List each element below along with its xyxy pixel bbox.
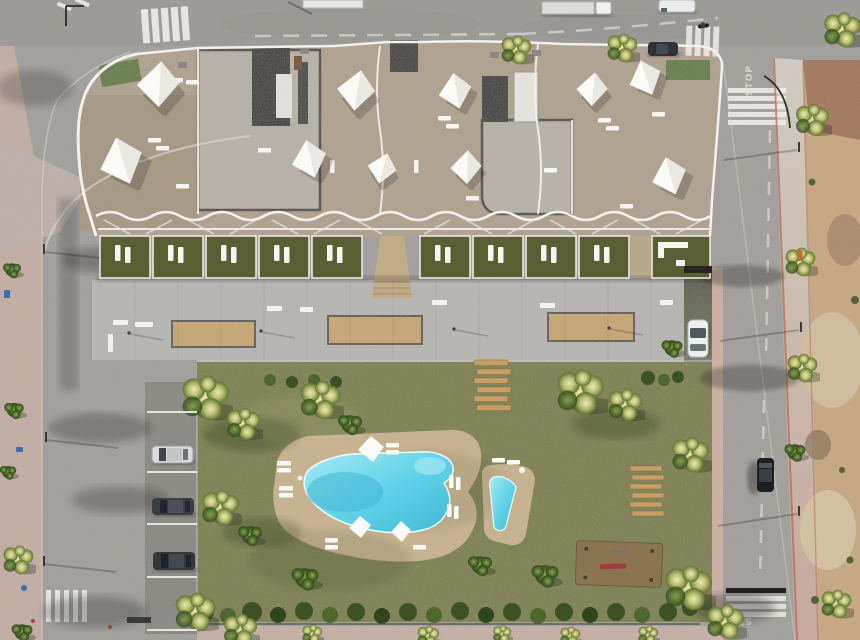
pool-shelf: [414, 457, 446, 475]
palm-tree: [824, 12, 860, 47]
roof-white-panel: [276, 74, 292, 118]
paved-terrace: [631, 236, 651, 278]
van: [659, 0, 697, 14]
ramp-wall: [684, 266, 712, 273]
tree-shadow: [700, 265, 784, 287]
stop-marking-top: STOP: [745, 65, 755, 96]
dirt-shade: [805, 430, 831, 460]
planter: [172, 321, 255, 347]
aerial-render-scene: STOP STOP: [0, 0, 860, 640]
dark-car-right-road: [747, 458, 774, 495]
parked-car-dark-1: [152, 498, 196, 517]
roof-dark-strip: [298, 62, 308, 124]
roof-dark-core: [390, 40, 418, 72]
terrace-bay: [579, 236, 629, 278]
gravel-roof-east: [482, 120, 572, 214]
building-shadow-west: [58, 198, 78, 390]
terrace-bay: [312, 236, 362, 278]
parked-car-dark-2: [153, 552, 197, 572]
planter: [328, 316, 422, 344]
tree-shadow: [43, 596, 147, 628]
terrace-bay: [206, 236, 256, 278]
planter: [548, 313, 634, 341]
tree-shadow: [48, 413, 152, 443]
tree-shadow: [700, 365, 800, 391]
truck: [542, 2, 612, 17]
dark-car-top: [648, 42, 680, 57]
driveway-car-white: [688, 320, 711, 357]
terrace-bay: [526, 236, 576, 278]
parking-wall: [127, 617, 151, 623]
roof-dark-core: [482, 76, 508, 122]
pool-deep-end: [307, 472, 383, 512]
truck-partial: [303, 0, 363, 8]
terrace-bay: [473, 236, 523, 278]
terrace-bay: [259, 236, 309, 278]
bottom-sidewalk: [197, 626, 712, 640]
scene-canvas: STOP STOP: [0, 0, 860, 640]
pink-kerb-strip: [712, 268, 723, 640]
playground: [575, 541, 662, 588]
roof-chimney: [294, 56, 302, 70]
green-roof-patch: [666, 60, 710, 80]
terrace-bay: [153, 236, 203, 278]
terrace-bay: [420, 236, 470, 278]
tree-shadow: [0, 70, 73, 106]
terrace-bay: [100, 236, 150, 278]
parked-car-silver: [152, 446, 195, 465]
